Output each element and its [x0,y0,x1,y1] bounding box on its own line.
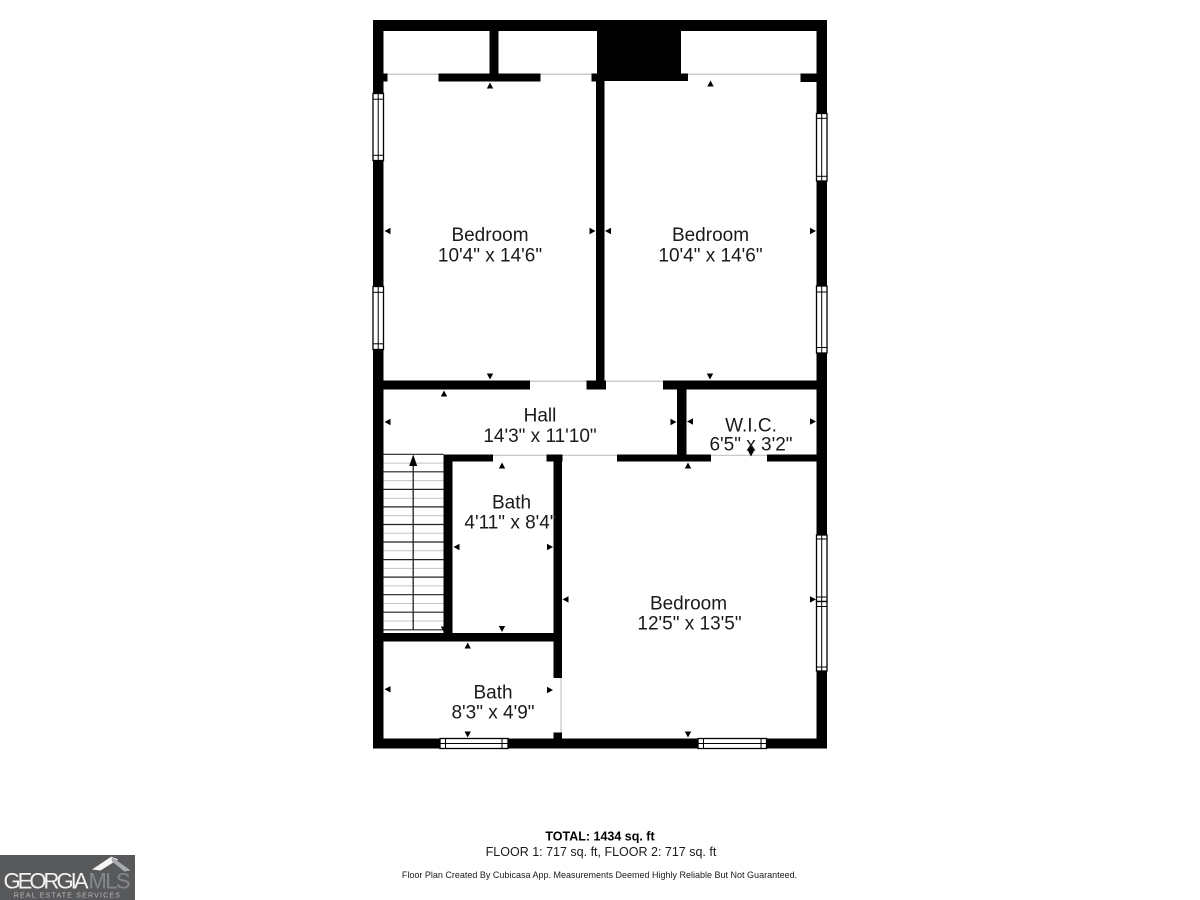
svg-text:8'3" x 4'9": 8'3" x 4'9" [451,703,534,724]
svg-text:4'11" x 8'4": 4'11" x 8'4" [464,513,556,534]
svg-text:10'4" x 14'6": 10'4" x 14'6" [438,246,542,267]
svg-text:MLS: MLS [89,869,131,894]
svg-text:Bath: Bath [492,493,531,514]
svg-text:14'3" x 11'10": 14'3" x 11'10" [483,426,596,447]
svg-text:REAL ESTATE SERVICES: REAL ESTATE SERVICES [14,893,121,900]
svg-text:6'5" x 3'2": 6'5" x 3'2" [709,435,792,456]
svg-text:Bath: Bath [473,682,512,703]
svg-text:FLOOR 1: 717 sq. ft, FLOOR 2:: FLOOR 1: 717 sq. ft, FLOOR 2: 717 sq. ft [486,845,717,859]
svg-text:Hall: Hall [524,406,557,427]
svg-text:TOTAL: 1434 sq. ft: TOTAL: 1434 sq. ft [545,830,655,844]
svg-text:GEORGIA: GEORGIA [4,869,89,894]
svg-text:W.I.C.: W.I.C. [725,416,777,437]
svg-text:Bedroom: Bedroom [650,593,727,614]
svg-text:Floor Plan Created By Cubicasa: Floor Plan Created By Cubicasa App. Meas… [402,870,797,880]
svg-text:Bedroom: Bedroom [672,225,749,246]
svg-text:10'4" x 14'6": 10'4" x 14'6" [658,246,762,267]
svg-text:Bedroom: Bedroom [451,225,528,246]
svg-text:12'5" x 13'5": 12'5" x 13'5" [637,614,741,635]
